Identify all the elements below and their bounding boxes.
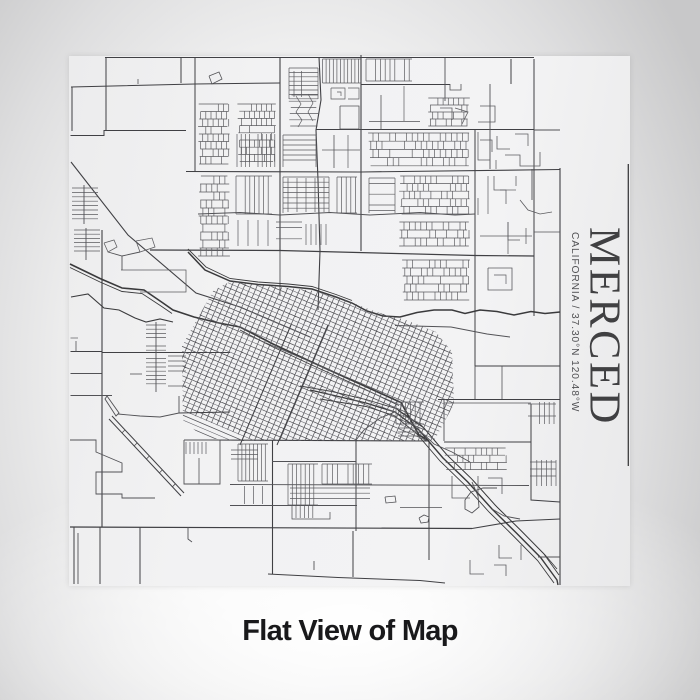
svg-text:Flat View of Map: Flat View of Map xyxy=(242,615,457,647)
svg-text:MERCED: MERCED xyxy=(581,227,630,426)
svg-text:CALIFORNIA / 37.30°N 120.48°W: CALIFORNIA / 37.30°N 120.48°W xyxy=(569,232,580,412)
